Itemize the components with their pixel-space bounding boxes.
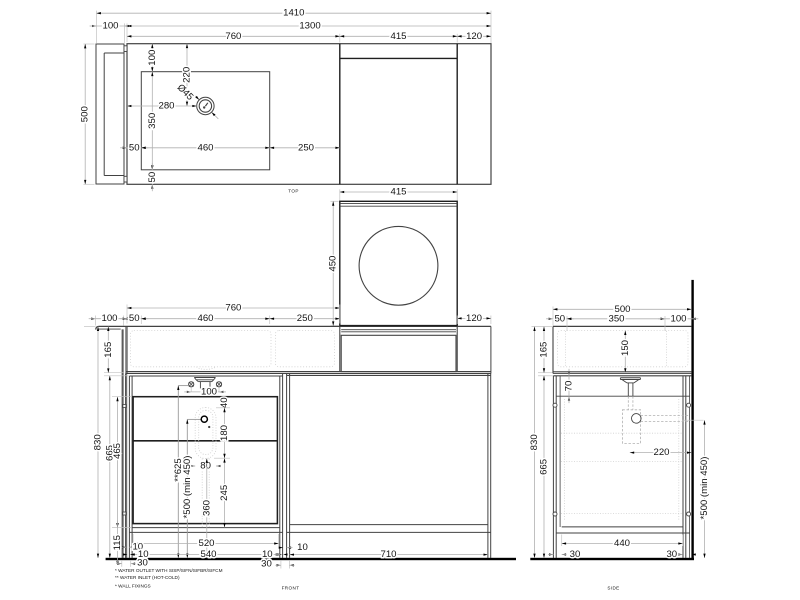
svg-text:350: 350 [608,313,624,324]
svg-text:30: 30 [570,549,581,560]
svg-text:30: 30 [261,559,272,570]
svg-text:830: 830 [93,434,104,450]
svg-text:50: 50 [554,313,565,324]
svg-text:520: 520 [198,538,214,549]
svg-text:665: 665 [539,459,550,475]
svg-text:100: 100 [147,50,158,66]
svg-text:10: 10 [297,542,308,553]
svg-text:*500 (min 450): *500 (min 450) [182,456,193,519]
svg-text:40: 40 [219,397,230,408]
svg-text:760: 760 [225,303,241,314]
svg-text:250: 250 [298,142,314,153]
svg-text:115: 115 [112,535,123,550]
svg-text:220: 220 [182,67,193,83]
svg-text:100: 100 [670,313,686,324]
svg-text:* WALL FIXINGS: * WALL FIXINGS [115,583,151,588]
svg-text:415: 415 [390,187,406,198]
svg-text:450: 450 [328,256,339,272]
svg-text:150: 150 [620,340,631,356]
svg-text:280: 280 [158,101,174,112]
svg-text:540: 540 [200,549,216,560]
svg-text:465: 465 [112,443,123,459]
svg-text:1300: 1300 [299,21,320,32]
svg-text:SIDE: SIDE [607,586,619,591]
svg-text:70: 70 [564,381,575,392]
svg-text:360: 360 [201,500,212,516]
svg-text:FRONT: FRONT [282,586,300,591]
svg-text:100: 100 [101,313,117,324]
svg-text:* WATER OUTLET WITH SISP/SIFN/: * WATER OUTLET WITH SISP/SIFN/SIFBR/SIFC… [115,568,223,573]
svg-text:415: 415 [390,31,406,42]
svg-text:460: 460 [197,142,213,153]
svg-text:830: 830 [529,434,540,450]
svg-text:50: 50 [147,172,158,183]
svg-text:50: 50 [129,313,140,324]
svg-text:TOP: TOP [288,188,299,193]
svg-text:245: 245 [219,485,230,501]
svg-text:180: 180 [219,425,230,441]
svg-text:440: 440 [614,538,630,549]
svg-text:120: 120 [466,31,482,42]
svg-text:** WATER INLET (HOT-COLD): ** WATER INLET (HOT-COLD) [115,575,180,580]
svg-text:50: 50 [129,142,140,153]
svg-text:1410: 1410 [283,8,304,19]
svg-text:760: 760 [225,31,241,42]
svg-text:220: 220 [653,447,669,458]
svg-text:100: 100 [201,386,217,397]
svg-text:710: 710 [380,549,396,560]
svg-text:250: 250 [297,313,313,324]
svg-text:500: 500 [80,106,91,122]
svg-text:460: 460 [197,313,213,324]
svg-text:100: 100 [102,21,118,32]
svg-text:*500 (min 450): *500 (min 450) [699,457,710,520]
svg-text:120: 120 [466,313,482,324]
svg-text:165: 165 [539,342,550,358]
svg-text:80: 80 [200,461,211,472]
svg-text:165: 165 [103,342,114,358]
svg-text:350: 350 [147,113,158,129]
svg-text:30: 30 [666,549,677,560]
